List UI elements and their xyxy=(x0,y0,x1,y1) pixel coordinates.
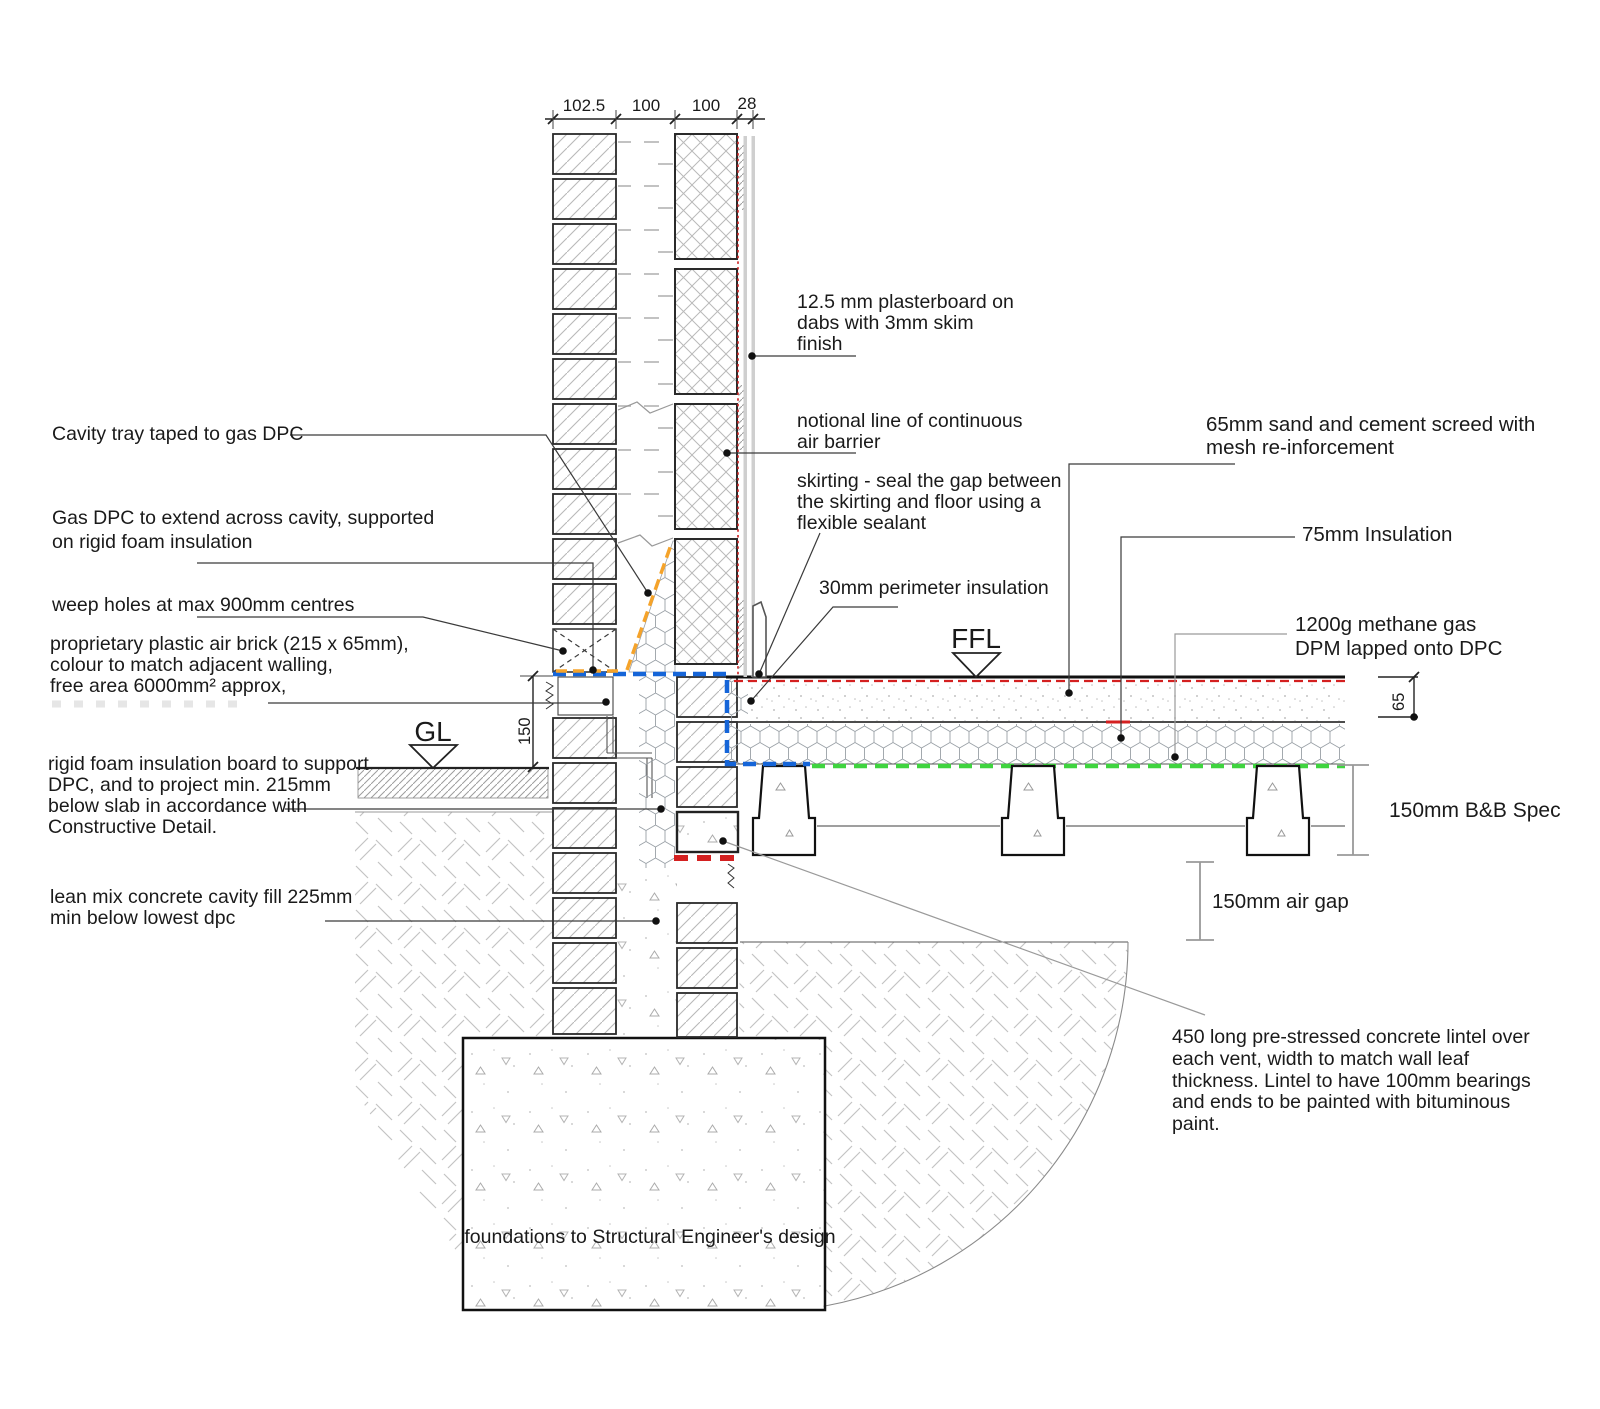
plaster-dab xyxy=(739,145,744,210)
svg-text:the skirting and floor using a: the skirting and floor using a xyxy=(797,491,1041,513)
plasterboard xyxy=(738,136,755,677)
svg-text:and ends to be painted with bi: and ends to be painted with bituminous xyxy=(1172,1091,1510,1113)
svg-text:min below lowest dpc: min below lowest dpc xyxy=(50,907,236,929)
svg-text:dabs with 3mm skim: dabs with 3mm skim xyxy=(797,312,974,334)
gl-marker: GL xyxy=(410,716,457,768)
dim-bb-spec: 150mm B&B Spec xyxy=(1337,765,1561,855)
label-plasterboard: 12.5 mm plasterboard on xyxy=(797,291,1014,313)
ground-level-strip xyxy=(355,768,553,812)
label-dpm: 1200g methane gas xyxy=(1295,613,1476,636)
svg-text:finish: finish xyxy=(797,333,843,355)
label-lintel: 450 long pre-stressed concrete lintel ov… xyxy=(1172,1026,1530,1048)
svg-text:thickness. Lintel to have 100m: thickness. Lintel to have 100mm bearings xyxy=(1172,1070,1531,1092)
t-beam xyxy=(1002,766,1064,855)
label-75mm-insulation: 75mm Insulation xyxy=(1302,523,1452,546)
svg-text:Constructive Detail.: Constructive Detail. xyxy=(48,816,217,838)
dpc-zigzag-outer xyxy=(546,682,553,709)
screed-layer xyxy=(748,680,1345,721)
svg-text:DPC, and to project min. 215mm: DPC, and to project min. 215mm xyxy=(48,774,331,796)
floor-construction xyxy=(726,677,1345,766)
dim-150-label: 150 xyxy=(516,717,534,745)
top-dimension-string: 102.5 100 100 28 xyxy=(545,94,765,129)
plaster-dab xyxy=(739,385,744,450)
floor-insulation-layer xyxy=(726,724,1345,764)
t-beam xyxy=(1247,766,1309,855)
dim-28: 28 xyxy=(738,94,757,113)
plasterboard-line xyxy=(744,136,748,677)
inner-block-leaf xyxy=(675,134,737,664)
label-foundation: foundations to Structural Engineer's des… xyxy=(464,1226,835,1248)
label-cavity-tray: Cavity tray taped to gas DPC xyxy=(52,423,303,445)
skim-line xyxy=(752,136,756,677)
construction-detail-page: FFL GL 102.5 100 100 28 150 65 150mm B&B… xyxy=(0,0,1600,1409)
concrete-lintel xyxy=(677,812,738,852)
label-air-barrier: notional line of continuous xyxy=(797,410,1023,432)
break-mark xyxy=(618,535,673,546)
svg-text:mesh re-inforcement: mesh re-inforcement xyxy=(1206,436,1394,459)
svg-text:free area 6000mm² approx,: free area 6000mm² approx, xyxy=(50,675,286,697)
skirting-board xyxy=(753,602,766,677)
ffl-label: FFL xyxy=(951,623,1001,654)
label-skirting: skirting - seal the gap between xyxy=(797,470,1062,492)
t-beam xyxy=(753,766,815,855)
lean-mix-fill xyxy=(617,868,677,1036)
svg-text:on rigid foam insulation: on rigid foam insulation xyxy=(52,531,253,553)
dpc-zigzag-inner xyxy=(728,864,734,888)
dim-100-cavity: 100 xyxy=(632,96,660,115)
dim-air-gap: 150mm air gap xyxy=(1186,862,1349,940)
label-rigid-foam: rigid foam insulation board to support xyxy=(48,753,369,775)
svg-text:paint.: paint. xyxy=(1172,1113,1220,1135)
svg-text:colour to match adjacent walli: colour to match adjacent walling, xyxy=(50,654,333,676)
svg-text:each vent, width to match wall: each vent, width to match wall leaf xyxy=(1172,1048,1470,1070)
svg-text:flexible sealant: flexible sealant xyxy=(797,512,927,534)
construction-detail-drawing: FFL GL 102.5 100 100 28 150 65 150mm B&B… xyxy=(0,0,1600,1409)
dim-65-label: 65 xyxy=(1390,693,1408,711)
dim-100-block: 100 xyxy=(692,96,720,115)
dim-bb-spec-label: 150mm B&B Spec xyxy=(1389,799,1561,822)
foundation-block xyxy=(463,1038,825,1310)
cavity xyxy=(618,134,673,546)
svg-text:air barrier: air barrier xyxy=(797,431,881,453)
svg-text:below slab in accordance with: below slab in accordance with xyxy=(48,795,307,817)
outer-brick-leaf xyxy=(553,134,616,1034)
dim-150-left: 150 xyxy=(516,671,553,772)
label-perimeter-insulation: 30mm perimeter insulation xyxy=(819,577,1049,599)
beam-and-block-floor xyxy=(753,766,1345,855)
dim-65-right: 65 xyxy=(1378,672,1419,721)
label-gas-dpc: Gas DPC to extend across cavity, support… xyxy=(52,507,434,529)
label-lean-mix: lean mix concrete cavity fill 225mm xyxy=(50,886,352,908)
label-weep-holes: weep holes at max 900mm centres xyxy=(51,594,355,616)
dim-air-gap-label: 150mm air gap xyxy=(1212,890,1349,913)
label-air-brick: proprietary plastic air brick (215 x 65m… xyxy=(50,633,409,655)
plaster-dab xyxy=(739,600,744,670)
svg-text:DPM lapped onto DPC: DPM lapped onto DPC xyxy=(1295,637,1503,660)
label-screed: 65mm sand and cement screed with xyxy=(1206,413,1535,436)
ffl-marker: FFL xyxy=(951,623,1001,677)
dim-102-5: 102.5 xyxy=(563,96,606,115)
cavity-insulation xyxy=(629,541,675,868)
gl-label: GL xyxy=(414,716,451,747)
perimeter-insulation-strip xyxy=(728,680,748,724)
